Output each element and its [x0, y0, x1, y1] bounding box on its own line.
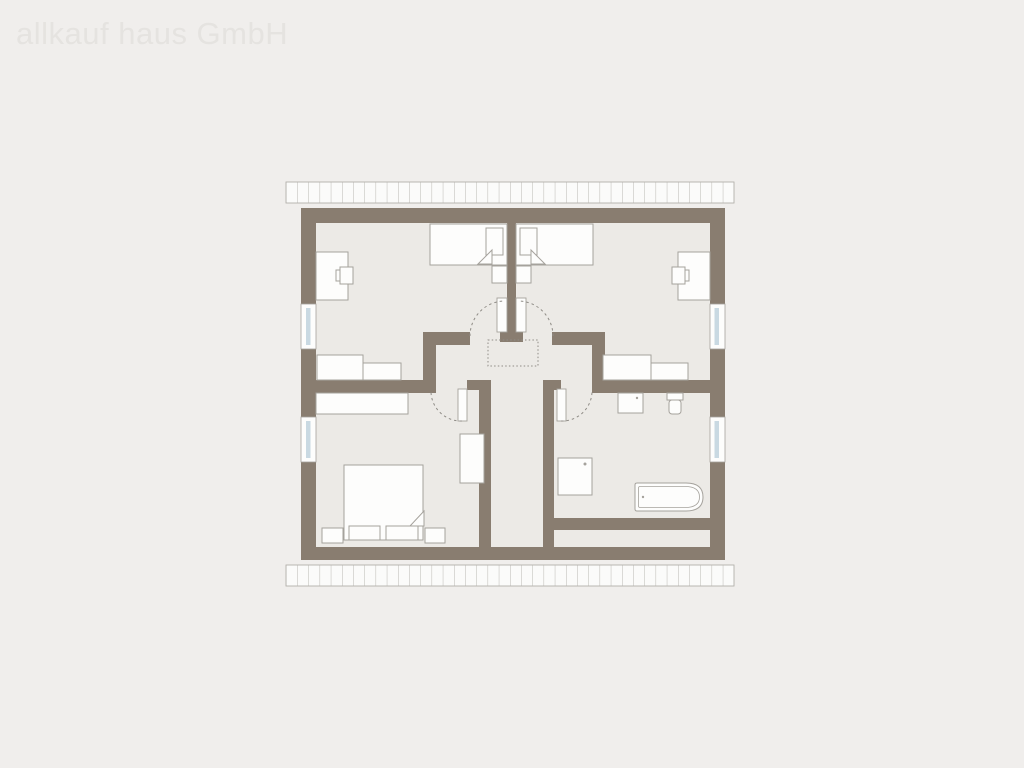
bed-top-left [430, 224, 507, 265]
nightstand-master-left [322, 528, 343, 543]
nightstand-master-right [425, 528, 445, 543]
bed-top-right [516, 224, 593, 265]
bathtub [635, 483, 703, 511]
bedside-table-top-left [492, 266, 507, 283]
window-right-upper [710, 304, 725, 349]
floor-plan [0, 0, 1024, 768]
sink [618, 393, 643, 413]
wardrobe-master [316, 393, 408, 414]
bedside-table-top-right [516, 266, 531, 283]
double-bed-master [344, 465, 424, 540]
chair-top-left [336, 267, 353, 284]
toilet [667, 393, 683, 414]
shower [558, 458, 592, 495]
roof-eave-bottom [286, 565, 734, 586]
window-left-lower [301, 417, 316, 462]
tall-cabinet-master [460, 434, 484, 483]
window-right-lower [710, 417, 725, 462]
roof-eave-top [286, 182, 734, 203]
window-left-upper [301, 304, 316, 349]
chair-top-right [672, 267, 689, 284]
